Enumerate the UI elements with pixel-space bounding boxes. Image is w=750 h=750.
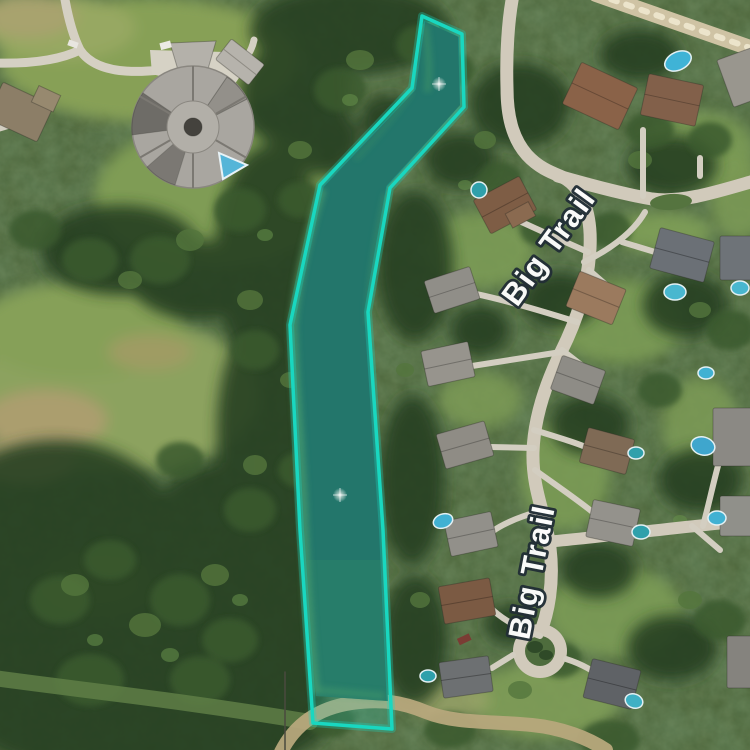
satellite-map[interactable]: Big Trail Big Trail xyxy=(0,0,750,750)
house xyxy=(439,656,494,699)
map-viewport[interactable]: Big Trail Big Trail xyxy=(0,0,750,750)
pond-fountain-sparkle xyxy=(333,488,347,502)
pond-fountain-sparkle xyxy=(432,77,446,91)
house xyxy=(713,408,750,466)
house xyxy=(727,636,750,688)
island-bush xyxy=(539,650,553,660)
house xyxy=(720,236,750,280)
